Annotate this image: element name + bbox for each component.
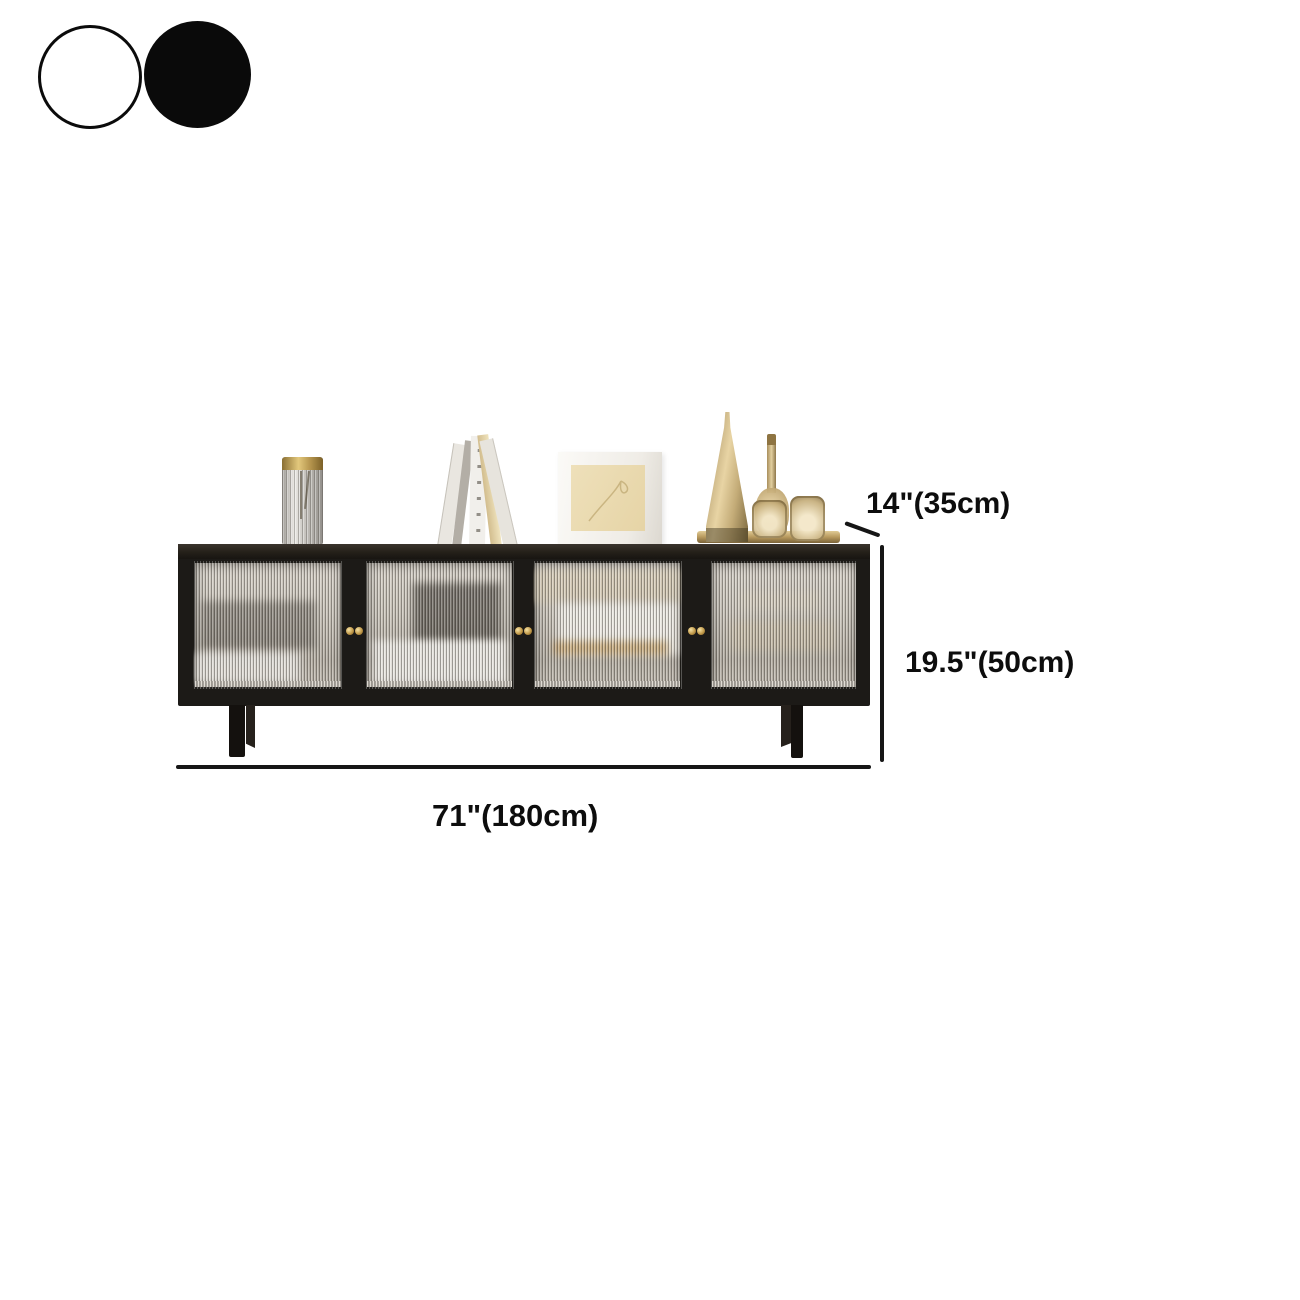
vase-stem [304,471,310,509]
interior-haze [533,569,682,603]
cabinet-top-board [178,544,870,559]
cabinet-leg-left-back [246,705,255,748]
width-dimension-line [176,765,871,769]
interior-faint-items [730,621,835,651]
vase-stem [300,471,302,519]
height-dimension-line [880,545,884,762]
product-scene [0,0,1300,1300]
dimension-width-label: 71"(180cm) [432,798,598,834]
interior-reflection [740,591,820,611]
picture-frame-mat [571,465,645,531]
interior-reflection [201,601,316,649]
interior-gold-plates [553,641,668,655]
door-knob-pair [346,627,363,635]
decor-glass-vase [282,457,323,545]
gold-knob [688,627,696,635]
dimension-depth-label: 14"(35cm) [866,487,1010,521]
decor-glass-tumbler [752,500,787,538]
decor-bottle-neck [767,445,776,493]
decor-tall-cone-bottle [706,412,748,542]
decor-picture-frame [558,452,662,545]
interior-plate-stack [195,653,300,683]
interior-reflection [413,583,501,641]
glass-door-1 [193,561,343,689]
gold-knob [524,627,532,635]
glass-door-4 [710,561,858,689]
interior-plate-stack [373,641,508,683]
frame-sketch [571,465,645,531]
decor-glass-tumbler [790,496,825,541]
decor-books [431,430,533,547]
door-knob-pair [515,627,532,635]
cabinet-leg-left-front [229,705,245,757]
tv-stand-cabinet [178,544,870,706]
bottle-base-shadow [706,528,748,542]
gold-knob [697,627,705,635]
glass-door-3 [533,561,682,689]
vase-gold-rim [282,457,323,470]
glass-door-2 [365,561,514,689]
gold-knob [355,627,363,635]
door-knob-pair [688,627,705,635]
product-dimension-image: 14"(35cm) 19.5"(50cm) 71"(180cm) [0,0,1300,1300]
dimension-height-label: 19.5"(50cm) [905,646,1074,680]
interior-white-box [558,603,678,655]
cabinet-leg-right-front [791,705,803,758]
gold-knob [515,627,523,635]
gold-knob [346,627,354,635]
